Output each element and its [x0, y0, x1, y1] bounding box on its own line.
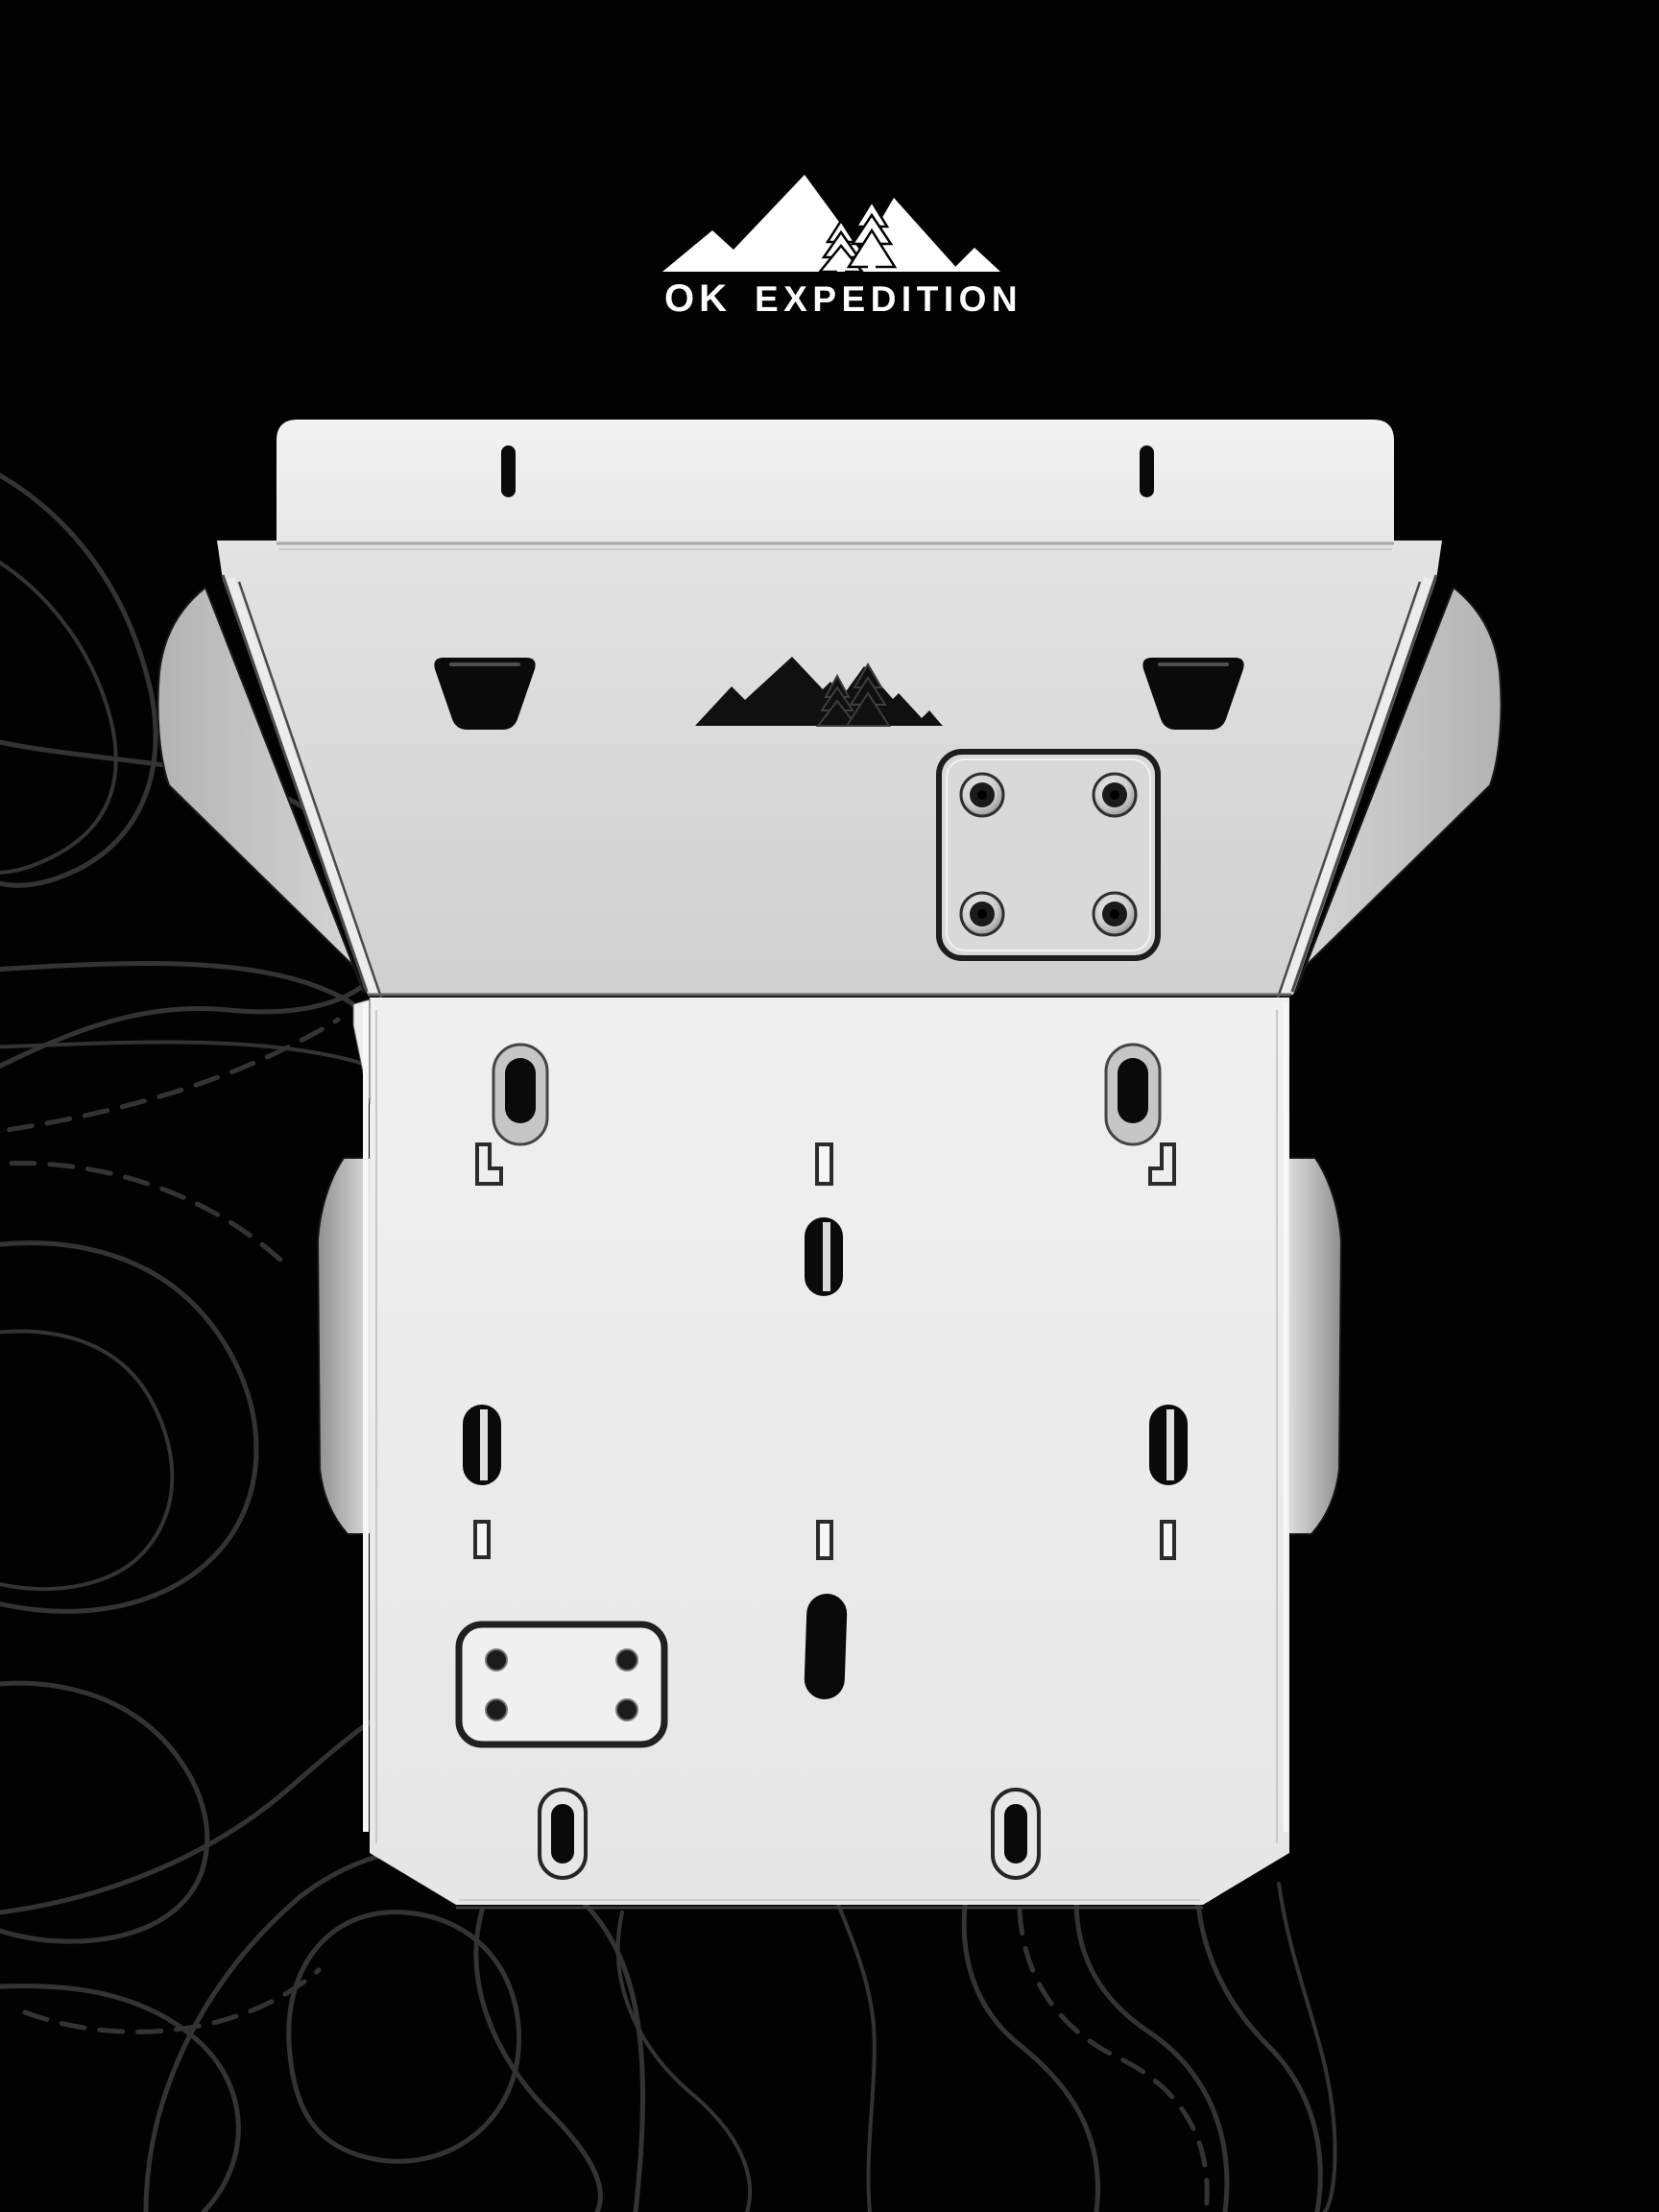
logo-wordmark: OK EXPEDITION — [664, 277, 1022, 320]
right-side-skirt — [1286, 1158, 1341, 1534]
contour-line-dashed — [1020, 1911, 1207, 2212]
center-slot — [805, 1217, 843, 1296]
bolt-access-panel — [459, 1624, 664, 1744]
brand-name-left: OK — [664, 277, 732, 320]
svg-text:EXPEDITION: EXPEDITION — [755, 279, 1022, 319]
contour-line — [289, 1912, 519, 2162]
screw-icon — [1094, 774, 1136, 816]
rect-mark — [475, 1522, 489, 1557]
contour-line — [1196, 1884, 1320, 2212]
contour-line — [0, 963, 371, 1031]
top-mount-plate — [276, 420, 1394, 549]
contour-line — [1279, 1884, 1335, 2212]
contour-line — [829, 1884, 875, 2212]
screw-icon — [1094, 893, 1136, 935]
main-plate — [353, 998, 1289, 1908]
contour-line — [0, 1683, 207, 1941]
brand-name-right: EXPEDITION — [755, 279, 1022, 319]
contour-line — [0, 461, 156, 885]
mid-slot-right — [1149, 1405, 1188, 1485]
bolt-icon — [616, 1649, 637, 1671]
bolt-icon — [486, 1699, 507, 1720]
rect-mark — [1162, 1522, 1174, 1558]
contour-line — [0, 543, 116, 873]
screw-icon — [961, 893, 1003, 935]
svg-text:OK: OK — [664, 277, 732, 320]
rect-mark — [817, 1144, 831, 1184]
contour-line — [0, 1986, 238, 2212]
sensor-access-panel — [939, 752, 1158, 958]
countersunk-slot — [1106, 1045, 1160, 1144]
bolt-icon — [616, 1699, 637, 1720]
brand-logo: OK EXPEDITION — [662, 175, 1022, 320]
drain-slot — [804, 1593, 848, 1699]
scene-svg: OK EXPEDITION — [0, 0, 1659, 2212]
rect-mark — [818, 1522, 831, 1558]
bolt-icon — [486, 1649, 507, 1671]
mid-plate-section — [217, 541, 1442, 998]
contour-line-dashed — [0, 1020, 338, 1135]
contour-line — [0, 1332, 172, 1589]
mid-slot-left — [463, 1405, 501, 1485]
screw-icon — [961, 774, 1003, 816]
contour-line — [0, 1042, 373, 1068]
contour-line — [0, 1243, 256, 1612]
product-hero: OK EXPEDITION — [0, 0, 1659, 2212]
skid-plate — [157, 420, 1501, 1908]
mount-slot — [501, 445, 516, 497]
mount-slot — [1140, 445, 1154, 497]
countersunk-slot — [493, 1045, 547, 1144]
